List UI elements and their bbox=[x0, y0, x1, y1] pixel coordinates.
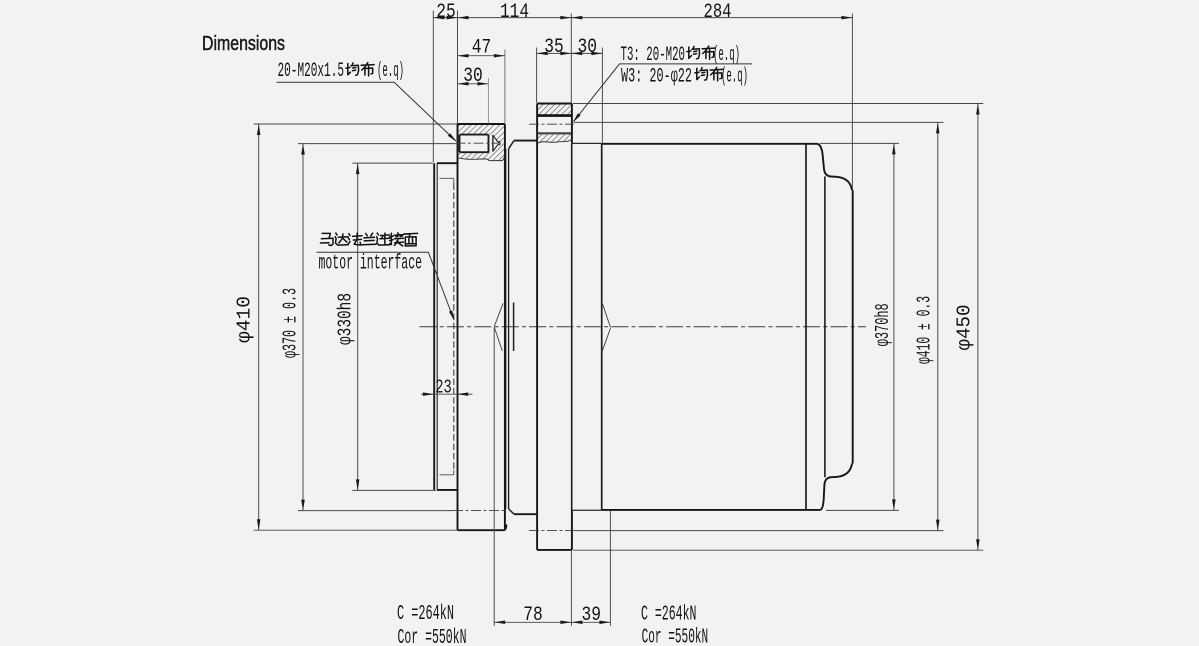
svg-text:φ450: φ450 bbox=[954, 305, 976, 351]
svg-text:78: 78 bbox=[523, 604, 543, 627]
svg-text:114: 114 bbox=[500, 1, 529, 24]
svg-text:35: 35 bbox=[544, 36, 564, 59]
svg-text:Cor =550kN: Cor =550kN bbox=[642, 626, 709, 646]
svg-text:30: 30 bbox=[577, 36, 597, 59]
svg-text:47: 47 bbox=[472, 37, 492, 60]
svg-text:C =264kN: C =264kN bbox=[641, 603, 697, 626]
svg-text:C =264kN: C =264kN bbox=[397, 603, 454, 626]
svg-text:motor interface: motor interface bbox=[319, 252, 423, 275]
svg-text:Cor =550kN: Cor =550kN bbox=[398, 627, 467, 646]
svg-text:φ370 ± 0.3: φ370 ± 0.3 bbox=[280, 288, 302, 358]
svg-text:20-M20x1.5: 20-M20x1.5 bbox=[278, 60, 345, 83]
svg-text:φ410 ± 0.3: φ410 ± 0.3 bbox=[914, 296, 936, 364]
svg-text:W3: 20-φ22: W3: 20-φ22 bbox=[621, 66, 692, 89]
svg-text:(e.q): (e.q) bbox=[721, 66, 748, 89]
svg-text:Dimensions: Dimensions bbox=[202, 33, 285, 55]
svg-text:φ370h8: φ370h8 bbox=[872, 303, 894, 346]
svg-text:30: 30 bbox=[463, 65, 483, 88]
svg-text:φ410: φ410 bbox=[234, 296, 256, 343]
svg-text:284: 284 bbox=[704, 1, 732, 24]
svg-text:25: 25 bbox=[436, 1, 456, 24]
svg-text:(e.q): (e.q) bbox=[377, 60, 404, 83]
svg-text:φ330h8: φ330h8 bbox=[335, 293, 357, 345]
svg-text:39: 39 bbox=[581, 604, 601, 627]
svg-text:23: 23 bbox=[435, 377, 452, 399]
